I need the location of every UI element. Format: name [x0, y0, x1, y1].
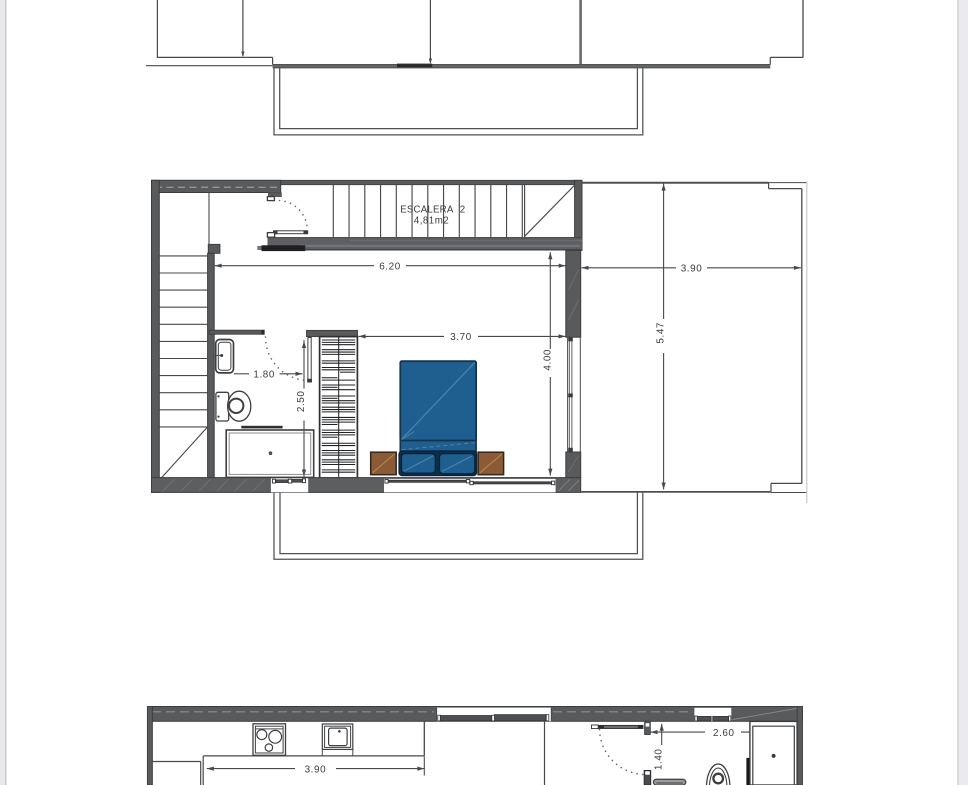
- svg-text:2.50: 2.50: [296, 390, 307, 412]
- svg-text:2.60: 2.60: [713, 728, 735, 739]
- svg-text:2: 2: [460, 205, 466, 216]
- svg-text:1.40: 1.40: [654, 748, 665, 770]
- svg-text:1.80: 1.80: [253, 370, 275, 381]
- svg-text:4.00: 4.00: [542, 349, 553, 371]
- svg-text:5.47: 5.47: [656, 322, 667, 344]
- svg-text:4,81m2: 4,81m2: [414, 215, 449, 226]
- svg-text:3.90: 3.90: [305, 764, 327, 775]
- svg-text:3.70: 3.70: [450, 332, 472, 343]
- svg-text:3.90: 3.90: [681, 264, 703, 275]
- svg-text:ESCALERA: ESCALERA: [400, 205, 454, 216]
- svg-text:6.20: 6.20: [379, 262, 401, 273]
